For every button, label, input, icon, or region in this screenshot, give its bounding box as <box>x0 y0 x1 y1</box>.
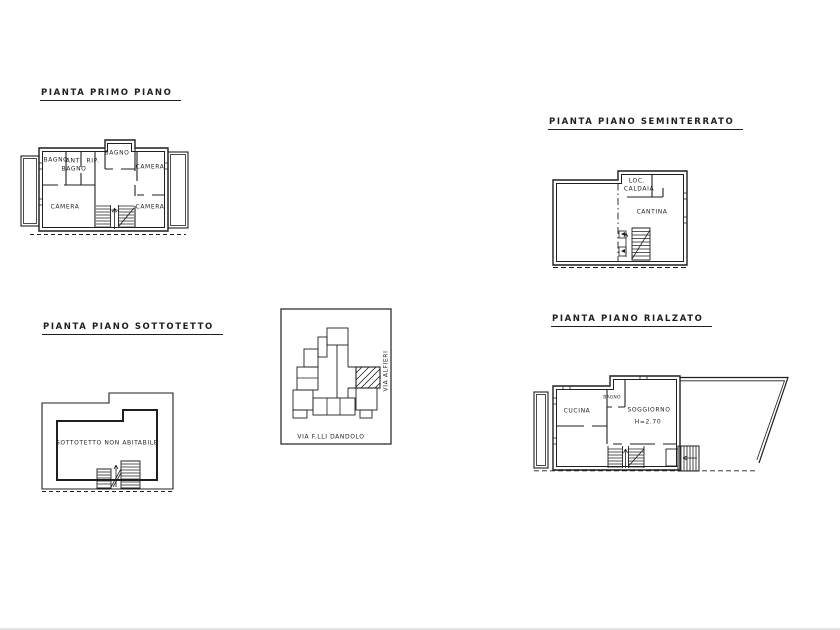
room-label-soggiorno: SOGGIORNO <box>627 407 670 414</box>
room-label-altezza: H=2.70 <box>635 419 662 426</box>
room-label-camera-sw: CAMERA <box>51 204 80 211</box>
room-label-antibagno-2: BAGNO <box>62 166 87 173</box>
room-label-loc-caldaia-1: LOC. <box>629 178 645 185</box>
plan-title-rialzato: PIANTA PIANO RIALZATO <box>551 314 712 327</box>
site-plan <box>281 309 391 444</box>
room-label-bagno-nw: BAGNO <box>44 157 69 164</box>
site-plan-border <box>281 309 391 444</box>
room-label-camera-se: CAMERA <box>136 204 165 211</box>
rialzato-stairs <box>608 446 644 468</box>
room-label-cucina: CUCINA <box>564 408 591 415</box>
street-label-via-alfieri: VIA ALFIERI <box>383 351 390 392</box>
site-subject-building-hatched <box>356 367 380 388</box>
plan-title-seminterrato: PIANTA PIANO SEMINTERRATO <box>548 117 743 130</box>
seminterrato-stairs <box>619 228 650 260</box>
room-label-loc-caldaia-2: CALDAIA <box>624 186 654 193</box>
room-label-camera-ne: CAMERA <box>136 164 165 171</box>
room-label-rip-stairs: RIP <box>110 210 118 215</box>
rialzato-entry-stairs <box>666 446 699 471</box>
sottotetto-stairs <box>97 461 140 488</box>
room-label-antibagno-1: ANTI <box>66 158 82 165</box>
plan-title-primo-piano: PIANTA PRIMO PIANO <box>40 88 181 101</box>
street-label-via-dandolo: VIA F.LLI DANDOLO <box>297 434 364 441</box>
sheet: { "sheet": { "paper": "#ffffff", "ink": … <box>0 0 840 630</box>
site-building-footprint <box>293 328 377 418</box>
room-label-bagno-top: BAGNO <box>105 150 130 157</box>
seminterrato-walls <box>553 171 687 268</box>
plan-title-sottotetto: PIANTA PIANO SOTTOTETTO <box>42 322 223 335</box>
room-label-rip: RIP. <box>87 158 100 165</box>
room-label-bagno-rialzato: BAGNO <box>603 396 620 401</box>
room-label-cantina: CANTINA <box>636 209 667 216</box>
room-label-sottotetto: SOTTOTETTO NON ABITABILE <box>56 440 158 447</box>
